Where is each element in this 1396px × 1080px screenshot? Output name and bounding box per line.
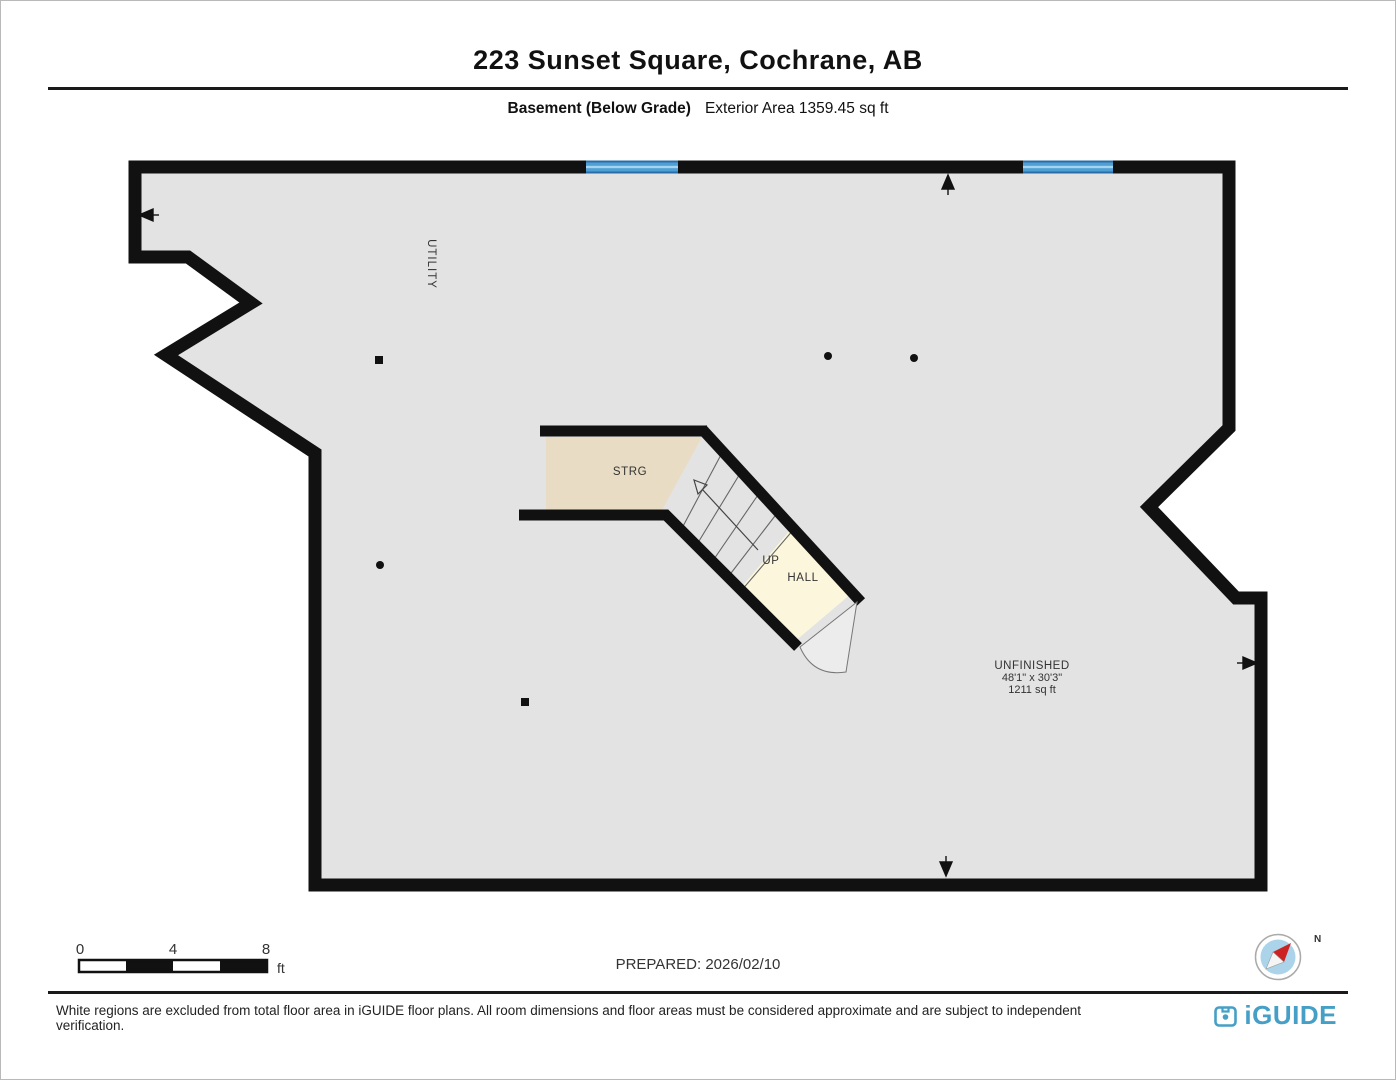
room-label-storage: STRG — [613, 466, 647, 478]
svg-text:1211 sq ft: 1211 sq ft — [1008, 684, 1056, 696]
brand-logo: iGUIDE — [1213, 1000, 1337, 1031]
prepared-date: PREPARED: 2026/02/10 — [1, 956, 1395, 973]
floor-plan-drawing: UTILITY STRG UP HALL UNFINISHED 48'1" x … — [1, 1, 1396, 1080]
svg-text:48'1" x 30'3": 48'1" x 30'3" — [1002, 672, 1062, 684]
svg-text:UNFINISHED: UNFINISHED — [994, 660, 1069, 672]
post-marker — [910, 354, 918, 362]
post-marker — [376, 561, 384, 569]
post-marker — [521, 698, 529, 706]
post-marker — [375, 356, 383, 364]
disclaimer-text: White regions are excluded from total fl… — [56, 1003, 1136, 1033]
window — [586, 161, 678, 174]
room-label-utility: UTILITY — [425, 239, 437, 289]
floorplan-page: 223 Sunset Square, Cochrane, AB Basement… — [0, 0, 1396, 1080]
exterior-walls — [135, 167, 1261, 885]
room-label-hall: HALL — [787, 572, 818, 584]
stair-label-up: UP — [762, 555, 779, 567]
post-marker — [824, 352, 832, 360]
compass-north-label: N — [1314, 934, 1321, 945]
footer-divider — [48, 991, 1348, 994]
iguide-camera-icon — [1213, 1004, 1239, 1028]
brand-name: iGUIDE — [1244, 1000, 1337, 1031]
window — [1023, 161, 1113, 174]
